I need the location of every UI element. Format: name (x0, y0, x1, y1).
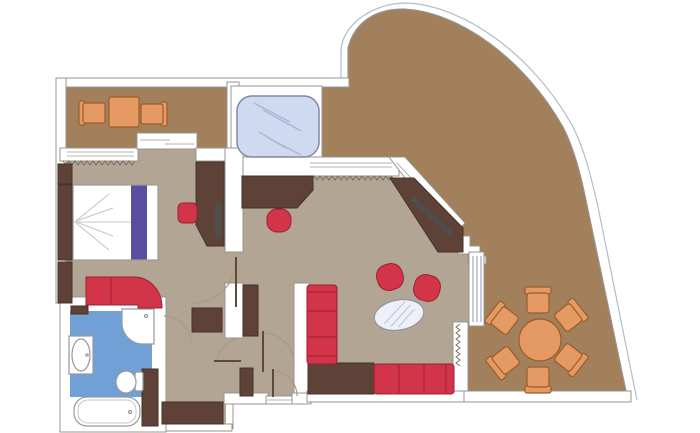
wardrobe-bottom (58, 262, 72, 303)
washbasin-tap (86, 354, 88, 356)
sofa-vertical (307, 285, 337, 364)
shower-drain (145, 315, 148, 318)
sofa-horizontal (374, 364, 454, 394)
bedroom-tv (215, 202, 221, 238)
closet-a (192, 308, 222, 332)
floor-plan (0, 0, 700, 433)
closet-d (162, 402, 223, 424)
bed-headboard (58, 185, 72, 260)
dining-chair (525, 367, 551, 393)
bathtub-tap (129, 411, 132, 414)
bathroom-shelf (71, 306, 88, 314)
corner-table (308, 363, 374, 394)
bedroom-ottoman (178, 203, 197, 223)
closet-b (243, 285, 258, 336)
whirlpool-bath (237, 96, 319, 157)
balcony-chair (79, 101, 105, 125)
wall-bed-living-divider (225, 148, 243, 252)
balcony-chair (141, 102, 167, 126)
passage-floor (224, 250, 244, 285)
balcony-table (109, 97, 139, 127)
wardrobe-top (58, 164, 72, 184)
bathroom-vanity (142, 369, 158, 426)
dining-table (519, 319, 561, 361)
balcony-slider-sill (137, 133, 197, 149)
whirlpool (237, 96, 319, 157)
closet-c (240, 368, 253, 396)
wall-balcony-south-a (60, 148, 138, 161)
bed-runner (131, 185, 147, 260)
double-bed (73, 185, 158, 260)
wall-hall-bottom (157, 424, 232, 431)
toilet (116, 371, 136, 393)
dining-chair (525, 287, 551, 313)
floor-plan-canvas (0, 0, 700, 433)
wall-hall-mid (225, 283, 243, 338)
desk-chair (267, 209, 291, 232)
